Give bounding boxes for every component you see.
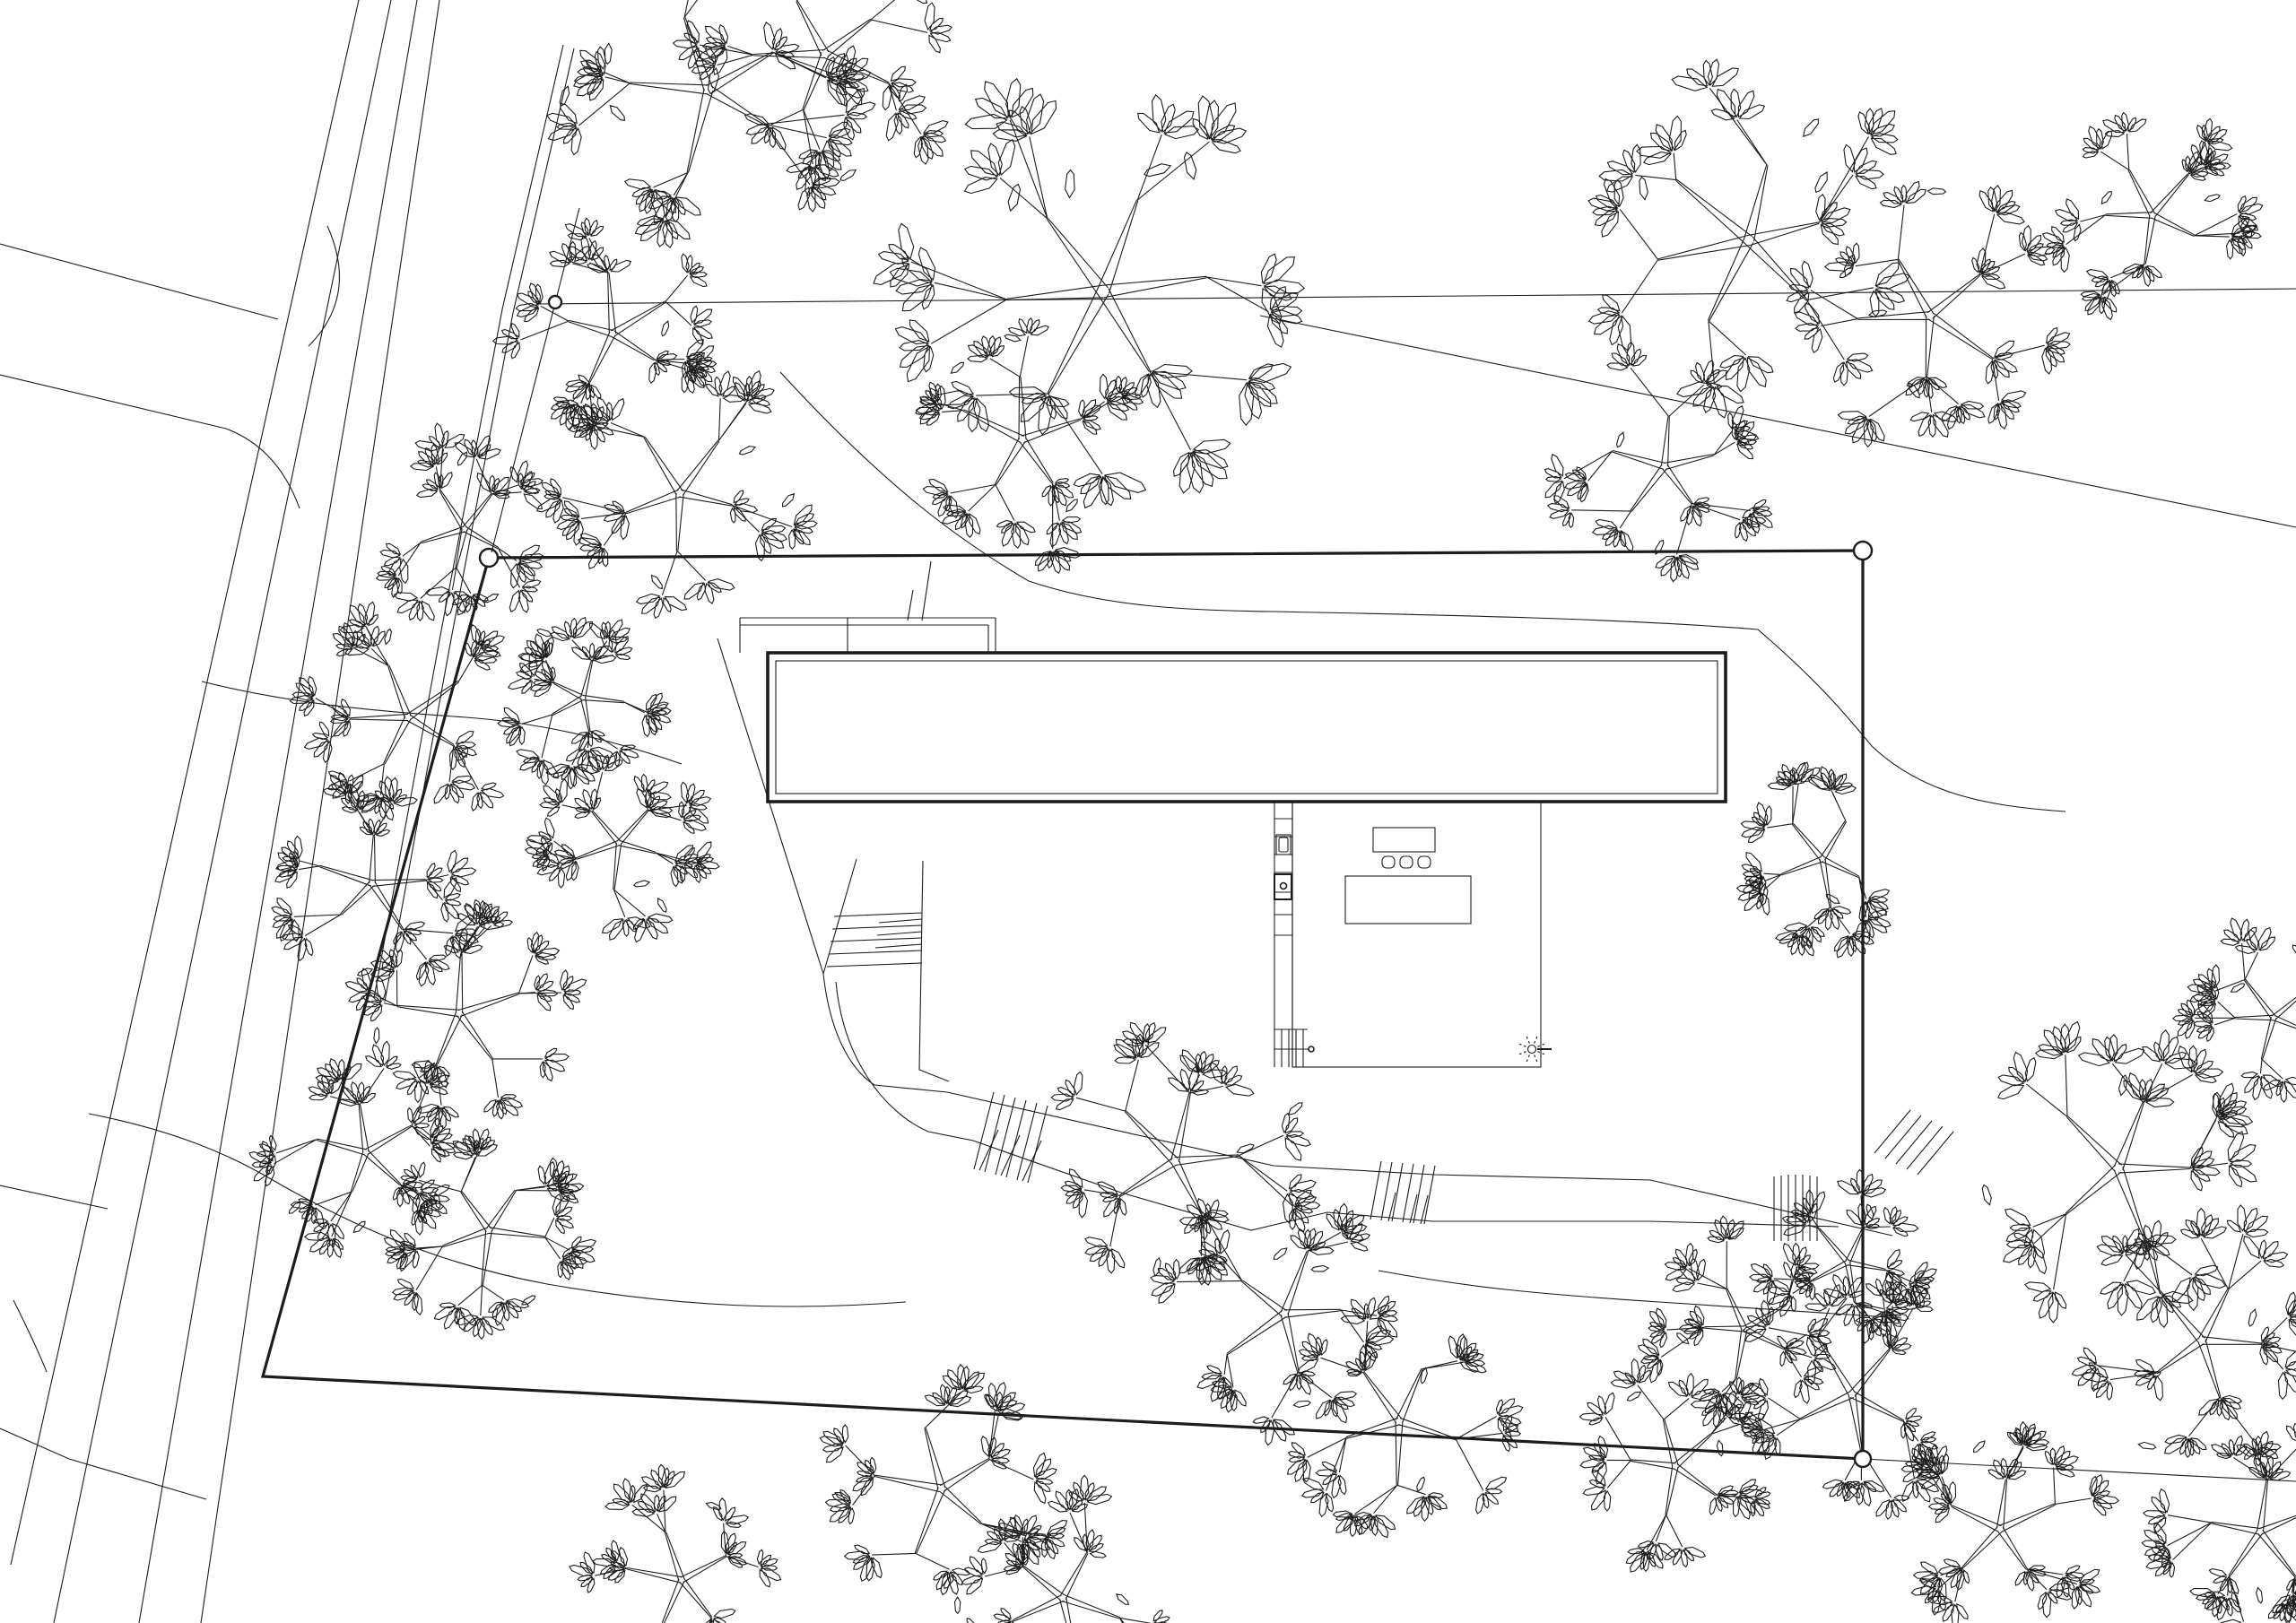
tree (674, 0, 952, 195)
tree (1288, 1298, 1523, 1537)
tree (249, 1041, 456, 1257)
tree (498, 618, 671, 789)
tree (1588, 59, 1909, 418)
tree (2072, 1205, 2296, 1472)
tree (2173, 918, 2296, 1102)
tree (2142, 1419, 2296, 1623)
contour-lines (89, 372, 2066, 1306)
stool (1400, 856, 1413, 868)
tree (1151, 1199, 1397, 1445)
tree (570, 1464, 781, 1623)
tree (1639, 1216, 1836, 1427)
terrace (1292, 802, 1541, 1067)
outdoor-kitchen (1274, 802, 1314, 1067)
outdoor-furniture (1345, 828, 1471, 924)
tree (874, 79, 1304, 508)
building-inner-line (776, 661, 1718, 794)
site-plan-canvas (0, 0, 2296, 1623)
boundary-corner-marker (1855, 1451, 1871, 1467)
stairs-middle (974, 1092, 1048, 1183)
tree (526, 755, 719, 942)
stairs-right (1370, 1161, 1435, 1224)
dining-table (1345, 876, 1471, 924)
light-fixture (1528, 1046, 1536, 1054)
tree (1737, 762, 1891, 958)
tree (1901, 1422, 2118, 1623)
garden-path-edges (717, 638, 1901, 1318)
building-outline (768, 653, 1726, 802)
tree (272, 773, 478, 986)
light-symbol (1518, 1036, 1552, 1063)
tree (1982, 1022, 2257, 1328)
survey-lines (491, 208, 2296, 552)
tree (820, 1365, 1066, 1614)
tree (956, 1475, 1178, 1623)
stairs-left (827, 913, 922, 967)
property-boundary (263, 542, 2296, 1481)
bar-table (1373, 828, 1435, 852)
tree (1787, 182, 2070, 447)
stool (1382, 856, 1395, 868)
fence-lines (374, 45, 574, 1002)
tree (1051, 1022, 1319, 1285)
tree (1579, 1359, 1770, 1573)
building-roof (768, 653, 1726, 802)
roads-layer (0, 0, 439, 1623)
trees-layer (249, 0, 2296, 1623)
stool (1418, 856, 1431, 868)
survey-point-marker (549, 296, 561, 308)
terrace-outline (1292, 802, 1541, 1067)
tree (2043, 113, 2263, 320)
tree (916, 318, 1143, 573)
boundary-line (263, 551, 1863, 1459)
tree (345, 900, 586, 1129)
tree (1544, 343, 1772, 582)
tree (384, 1129, 596, 1339)
entry-deck (740, 561, 996, 653)
boundary-corner-marker (1854, 542, 1872, 560)
boundary-corner-marker (480, 549, 498, 567)
